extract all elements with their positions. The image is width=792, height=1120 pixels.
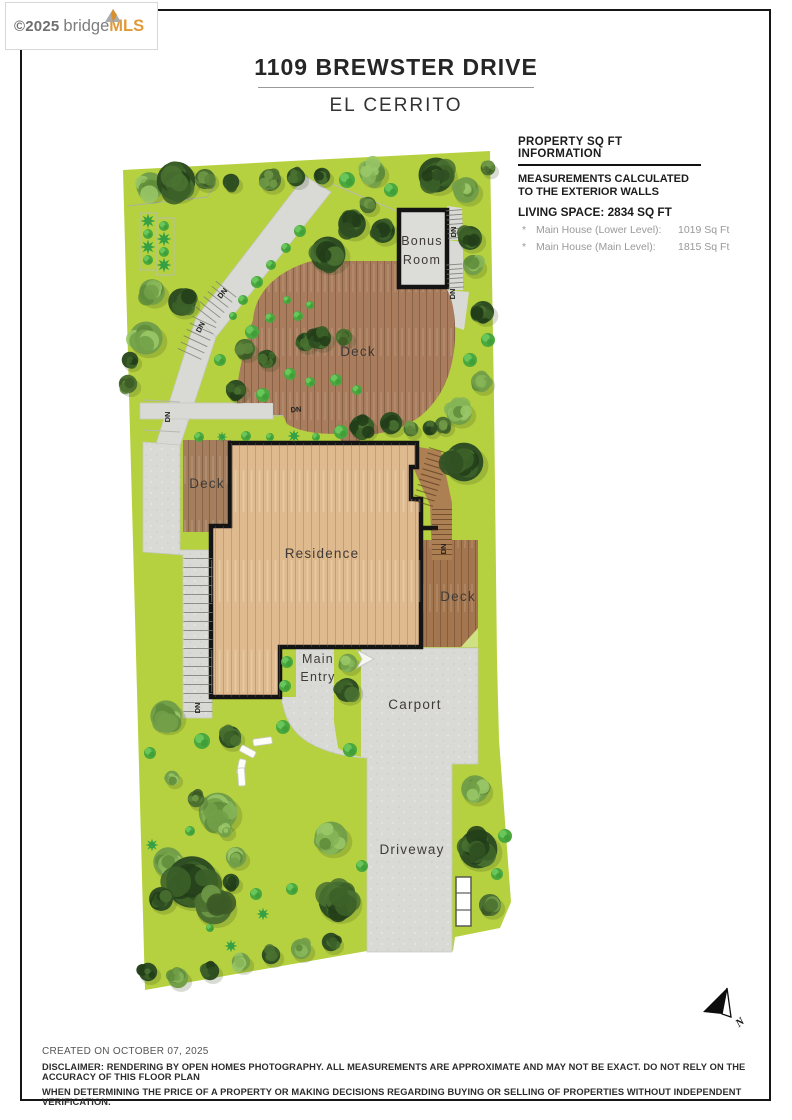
main-entry-label: Entry xyxy=(300,670,335,684)
svg-text:DN: DN xyxy=(193,703,202,714)
gate xyxy=(456,877,471,926)
carport-label: Carport xyxy=(388,697,441,712)
logo-copyright: ©2025 xyxy=(14,18,59,35)
site-plan-page: DN DN DN DN DN DN DN DN Bonus Room Deck … xyxy=(0,0,792,1120)
svg-text:DN: DN xyxy=(448,289,457,300)
footer: CREATED ON OCTOBER 07, 2025 DISCLAIMER: … xyxy=(42,1046,752,1107)
measurement-note: MEASUREMENTS CALCULATED TO THE EXTERIOR … xyxy=(518,173,748,199)
disclaimer-text: WHEN DETERMINING THE PRICE OF A PROPERTY… xyxy=(42,1087,752,1107)
deck-main-label: Deck xyxy=(340,344,376,359)
sqft-item-lower: * Main House (Lower Level): 1019 Sq Ft xyxy=(518,224,748,236)
residence-label: Residence xyxy=(285,546,360,561)
page-subtitle: EL CERRITO xyxy=(0,95,792,117)
property-info-panel: PROPERTY SQ FT INFORMATION MEASUREMENTS … xyxy=(518,136,748,253)
sqft-item-main: * Main House (Main Level): 1815 Sq Ft xyxy=(518,241,748,253)
north-arrow: N xyxy=(703,988,748,1030)
svg-text:DN: DN xyxy=(449,227,458,238)
main-entry-label: Main xyxy=(302,652,334,666)
page-title: 1109 BREWSTER DRIVE xyxy=(0,54,792,81)
header: 1109 BREWSTER DRIVE EL CERRITO xyxy=(0,54,792,117)
mountain-peak-icon xyxy=(102,8,124,23)
deck-left-label: Deck xyxy=(189,476,225,491)
svg-text:DN: DN xyxy=(439,544,448,555)
bonus-room-label: Bonus xyxy=(401,234,442,248)
svg-text:DN: DN xyxy=(290,404,302,414)
svg-text:DN: DN xyxy=(163,412,172,423)
bridgemls-logo: ©2025 bridge MLS xyxy=(5,2,158,50)
driveway-label: Driveway xyxy=(379,842,444,857)
living-space-total: LIVING SPACE: 2834 SQ FT xyxy=(518,205,748,219)
bonus-room xyxy=(399,210,447,287)
deck-right-label: Deck xyxy=(440,589,476,604)
north-label: N xyxy=(733,1015,748,1031)
title-divider xyxy=(258,87,534,88)
disclaimer-text: DISCLAIMER: RENDERING BY OPEN HOMES PHOT… xyxy=(42,1062,752,1082)
property-info-heading: PROPERTY SQ FT INFORMATION xyxy=(518,136,701,166)
bonus-room-label: Room xyxy=(403,253,441,267)
created-date: CREATED ON OCTOBER 07, 2025 xyxy=(42,1046,752,1057)
